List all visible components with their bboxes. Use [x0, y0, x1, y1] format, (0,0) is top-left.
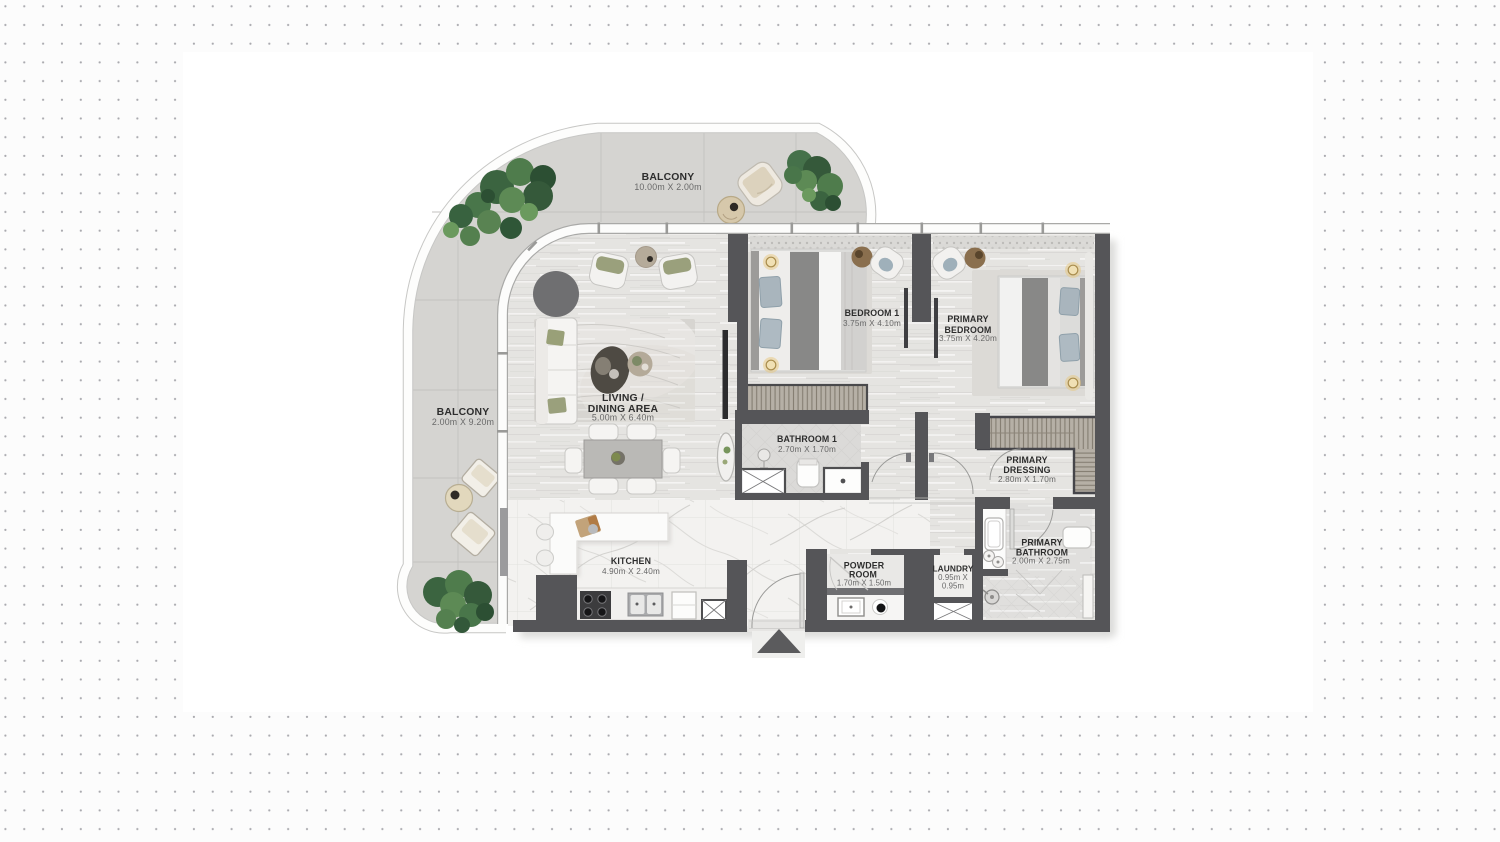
- svg-text:LIVING /: LIVING /: [602, 393, 644, 404]
- svg-text:10.00m X 2.00m: 10.00m X 2.00m: [634, 182, 701, 192]
- svg-text:BEDROOM 1: BEDROOM 1: [845, 308, 900, 318]
- svg-text:2.70m X 1.70m: 2.70m X 1.70m: [778, 445, 836, 454]
- svg-text:2.00m X 9.20m: 2.00m X 9.20m: [432, 417, 494, 427]
- svg-text:KITCHEN: KITCHEN: [611, 556, 651, 566]
- svg-text:BATHROOM 1: BATHROOM 1: [777, 434, 837, 444]
- svg-text:DRESSING: DRESSING: [1003, 465, 1050, 475]
- svg-text:PRIMARY: PRIMARY: [1006, 455, 1047, 465]
- svg-text:PRIMARY: PRIMARY: [1021, 538, 1062, 548]
- svg-text:3.75m X 4.20m: 3.75m X 4.20m: [939, 334, 997, 343]
- svg-text:2.00m X 2.75m: 2.00m X 2.75m: [1012, 557, 1070, 566]
- svg-text:5.00m X 6.40m: 5.00m X 6.40m: [592, 413, 654, 423]
- svg-text:PRIMARY: PRIMARY: [947, 314, 988, 324]
- svg-text:2.80m X 1.70m: 2.80m X 1.70m: [998, 475, 1056, 484]
- svg-text:1.70m X 1.50m: 1.70m X 1.50m: [837, 579, 891, 588]
- svg-text:4.90m X 2.40m: 4.90m X 2.40m: [602, 567, 660, 576]
- svg-text:0.95m: 0.95m: [942, 582, 964, 591]
- svg-text:3.75m X 4.10m: 3.75m X 4.10m: [843, 319, 901, 328]
- svg-text:LAUNDRY: LAUNDRY: [933, 564, 974, 574]
